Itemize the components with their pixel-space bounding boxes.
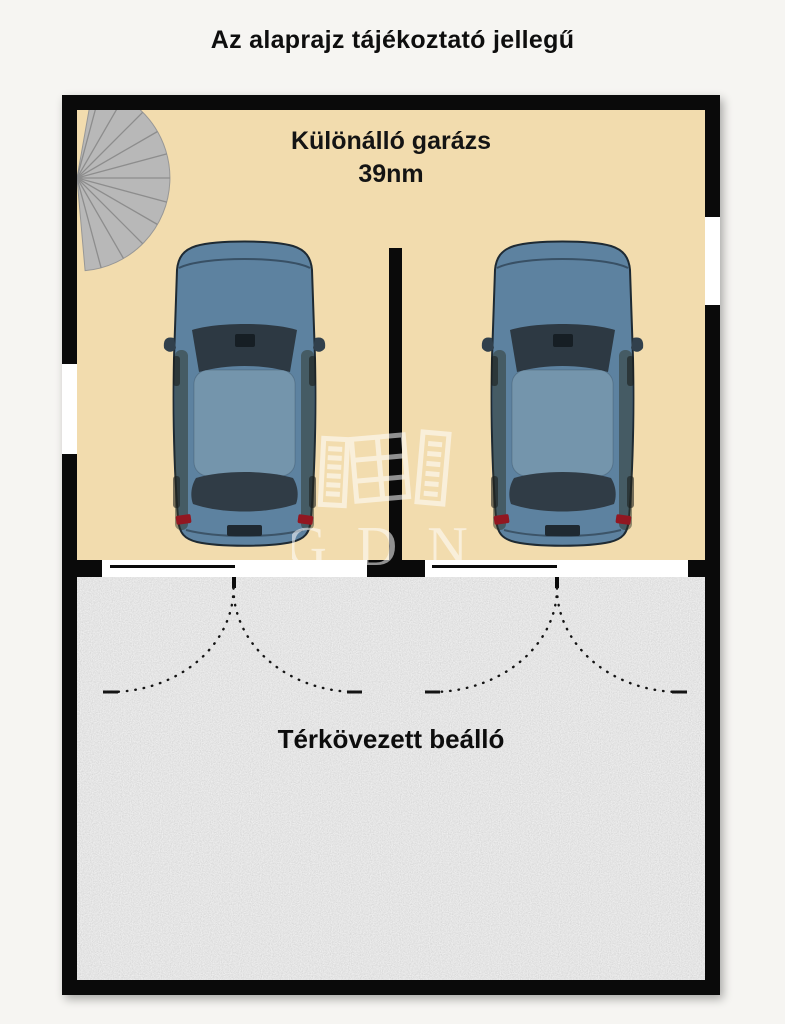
garage-door-leaf bbox=[110, 565, 235, 568]
watermark-tower-right bbox=[417, 432, 449, 504]
carport-border-bottom bbox=[62, 980, 720, 995]
floorplan-page: { "title": "Az alaprajz tájékoztató jell… bbox=[0, 0, 785, 1024]
floorplan: GDN Különálló garázs 39nm Térkövezett be… bbox=[62, 95, 720, 995]
garage-label: Különálló garázs 39nm bbox=[62, 125, 720, 191]
windshield bbox=[192, 324, 297, 372]
plan-disclaimer-title: Az alaprajz tájékoztató jellegű bbox=[0, 26, 785, 55]
garage-label-name: Különálló garázs bbox=[62, 125, 720, 158]
carport-border-left bbox=[62, 577, 77, 995]
wall-bottom-seg-right bbox=[688, 560, 720, 577]
door-swing-arcs bbox=[77, 577, 705, 980]
mirror-right bbox=[313, 337, 325, 351]
wall-top bbox=[62, 95, 720, 110]
watermark-text: GDN bbox=[292, 516, 498, 578]
mirror-left bbox=[482, 337, 494, 351]
wall-right-lower bbox=[705, 307, 720, 577]
watermark-tower-left bbox=[320, 438, 347, 505]
rear-window bbox=[191, 472, 297, 512]
wall-bottom-seg-left bbox=[62, 560, 102, 577]
wall-left-lower bbox=[62, 456, 77, 577]
watermark-window bbox=[351, 435, 408, 501]
window-right bbox=[705, 215, 720, 307]
roof bbox=[194, 370, 295, 476]
garage-label-area: 39nm bbox=[62, 158, 720, 191]
mirror-right bbox=[631, 337, 643, 351]
carport-border-right bbox=[705, 577, 720, 995]
window-left bbox=[62, 362, 77, 456]
carport-label: Térkövezett beálló bbox=[62, 724, 720, 755]
mirror-left bbox=[164, 337, 176, 351]
windshield bbox=[510, 324, 615, 372]
gdn-watermark: GDN bbox=[292, 425, 572, 580]
